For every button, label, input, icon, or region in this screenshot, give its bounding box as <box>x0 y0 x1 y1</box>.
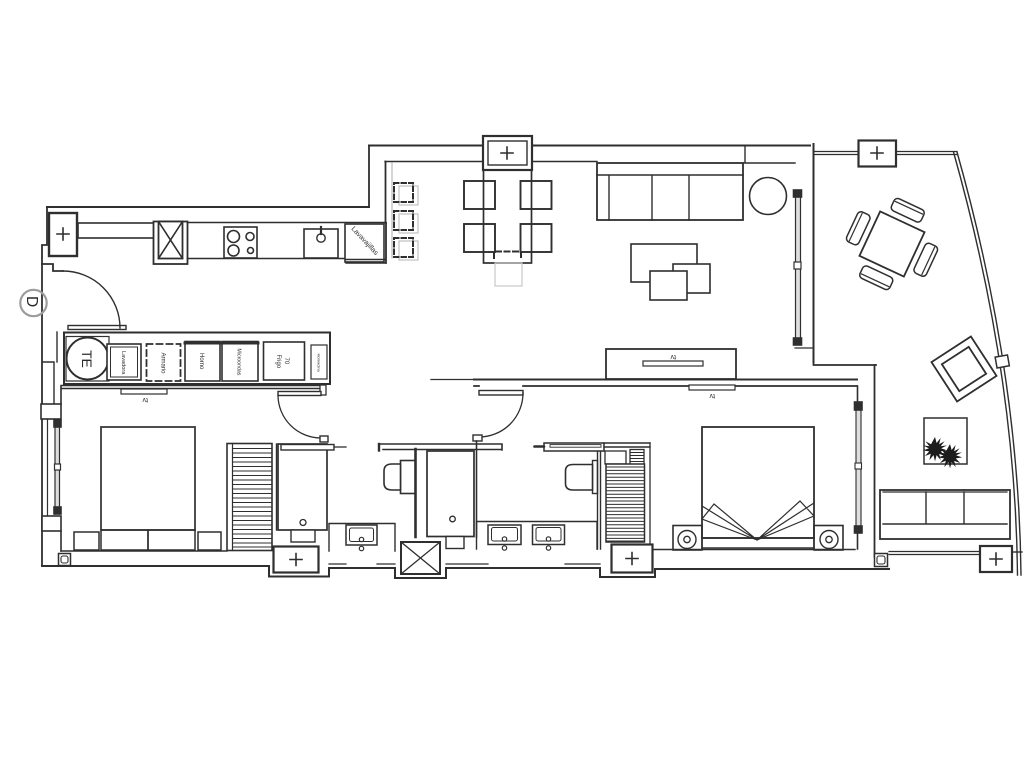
svg-text:TE: TE <box>79 350 95 368</box>
svg-text:Horno: Horno <box>198 353 204 370</box>
svg-text:70: 70 <box>283 358 289 365</box>
svg-text:Lavadora: Lavadora <box>120 351 126 375</box>
svg-text:D: D <box>23 296 40 307</box>
svg-text:tv: tv <box>670 353 676 360</box>
svg-text:Frigo: Frigo <box>275 355 281 369</box>
svg-text:tv: tv <box>709 392 715 399</box>
svg-text:tv: tv <box>142 396 148 403</box>
svg-text:Microondas: Microondas <box>236 349 242 376</box>
svg-text:Hornacina: Hornacina <box>317 354 322 373</box>
svg-text:Armario: Armario <box>160 353 166 375</box>
